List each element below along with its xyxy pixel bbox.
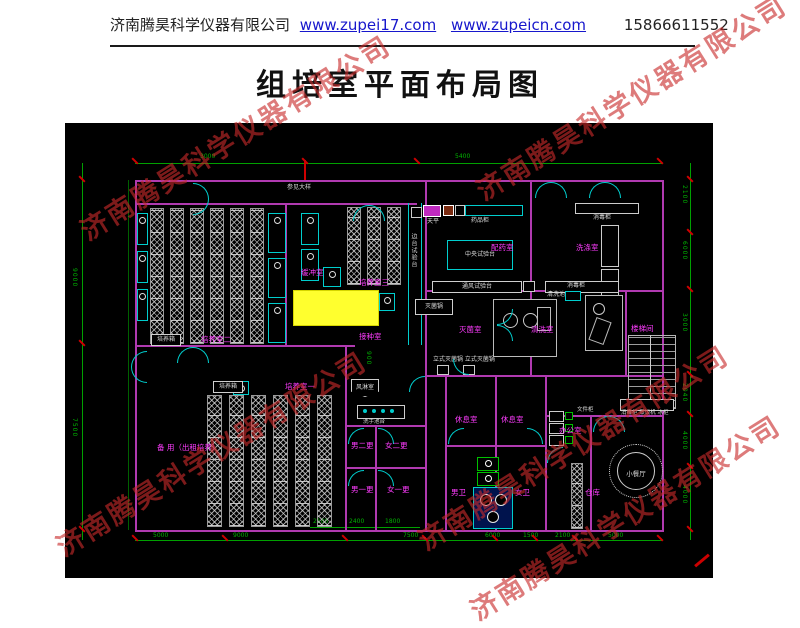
room-label-nv1: 女一更 [387,486,410,494]
dim-top-2: 5400 [455,154,470,160]
dining-room-label: 小餐厅 [626,470,646,478]
culture-rack [250,208,264,344]
wall [345,345,347,530]
door-arc-icon [409,376,425,392]
dim-line-bottom2 [310,527,420,528]
toilet-bowl-icon [495,494,507,506]
corridor-line [421,203,422,345]
sterilizer-label: 灭菌锅 [425,303,443,310]
door-arc-icon [605,182,621,198]
door-arc-icon [551,182,567,198]
disinfect-bench [575,203,639,214]
medicine-cabinet-label: 药品柜 [471,218,489,224]
culture-rack [295,395,310,527]
room-label-nvwei: 女卫 [515,489,530,497]
room-label-huanchong: 缓冲室 [301,269,324,277]
dim-top-1: 3000 [200,154,215,160]
grid-line [128,180,129,530]
oven-icon [443,205,454,216]
stair-divider [650,335,651,407]
culture-rack [387,207,401,285]
fume-bench: 通风试验台 [432,281,522,293]
room-label-xiuxi2: 休息室 [501,416,524,424]
door-arc-icon [131,367,147,383]
dim-right-1: 2100 [681,185,687,204]
culture-rack [251,395,266,527]
wall [445,375,447,530]
page: { "header": { "company": "济南腾昊科学仪器有限公司",… [0,0,800,600]
culture-rack [207,395,222,527]
dim-bottom2-2: 2400 [349,519,364,525]
fume-bench-label: 通风试验台 [462,283,492,290]
door-arc-icon [348,470,364,486]
wall [625,290,627,375]
sink-icon [565,291,581,301]
incubator-icon [137,289,148,321]
door-arc-icon [193,347,209,363]
room-label-nanwei: 男卫 [451,489,466,497]
room-label-louti: 楼梯间 [631,325,654,333]
basin-icons [363,409,367,413]
door-arc-icon [193,199,209,215]
incubator-label: 培养箱 [157,336,175,343]
dim-line-right [690,163,691,540]
room-label-peiyang2: 培养室二 [201,336,231,344]
incubator-icon [137,213,148,245]
culture-rack [190,208,204,344]
incubator-icon [268,258,286,298]
side-bench-label: 边台试验台 [410,233,416,268]
door-arc-icon [131,351,147,367]
dim-line-bottom [135,540,662,541]
sink-green-icon [477,472,499,486]
incubator-icon [137,251,148,283]
sink-unit [601,225,619,267]
hatched-wall [571,463,583,529]
corridor-note: 参见大样 [287,185,311,191]
chair-icon [565,436,573,444]
culture-rack [230,208,244,344]
dim-bottom-1: 5000 [153,533,168,539]
company-name: 济南腾昊科学仪器有限公司 [110,16,290,34]
room-label-xidi: 洗涤室 [576,244,599,252]
dim-right-2: 6000 [681,241,687,260]
dim-right-4: 2040 [681,383,687,402]
dim-right-5: 4000 [681,431,687,450]
culture-rack [273,395,288,527]
door-arc-icon [593,416,609,432]
dining-table: 小餐厅 [617,452,655,490]
culture-rack [170,208,184,344]
sterilizer-icon [437,365,449,375]
culture-rack [150,208,164,344]
door-tag-icon [523,281,535,292]
incubator-icon [268,303,286,343]
wall [545,375,547,530]
room-label-peiyao: 配药室 [491,244,514,252]
balance-label: 天平 [427,219,439,225]
incubator-icon [268,213,286,253]
page-title: 组培室平面布局图 [0,60,800,104]
sink-green-icon [477,457,499,471]
dim-bottom-3: 7500 [403,533,418,539]
room-label-cangku: 仓库 [585,489,600,497]
wall [345,467,425,469]
room-label-beiyong: 备 用（出租培养） [157,444,219,452]
toilet-bowl-icon [487,511,499,523]
wall [135,203,417,205]
room-label-peiyang3: 培养室三 [359,279,389,287]
disinfect-cabinet-label: 消毒柜 [593,215,611,221]
door-arc-icon [453,359,469,375]
cabinet-bench [465,205,523,216]
disinfect-cabinet-label2: 消毒柜 [567,283,585,289]
dim-line-top [135,163,662,164]
wash-basin-label: 洗手池台 [363,420,385,426]
incubator-label2: 培养箱 [219,383,237,390]
sterilizer-box: 灭菌锅 [415,299,453,315]
air-shower-label: 风淋室 [356,384,374,391]
door-arc-icon [177,347,193,363]
incubator-icon [323,267,341,287]
room-label-xiuxi1: 休息室 [455,416,478,424]
dim-inner: 900 [365,351,371,365]
dim-line-left [82,163,83,540]
room-label-qingxi: 清洗室 [531,326,554,334]
dim-bottom2-3: 1800 [385,519,400,525]
dim-bottom-7: 5000 [608,533,623,539]
phone-number: 15866611552 [624,16,729,34]
dim-right-3: 3000 [681,313,687,332]
incubator-icon [379,293,395,311]
door-tag-icon [411,207,422,218]
link-zupei17[interactable]: www.zupei17.com [300,16,436,34]
room-label-nan1: 男一更 [351,486,374,494]
staircase [628,335,676,409]
incubator-icon [301,213,319,245]
door-arc-icon [589,182,605,198]
desk [549,411,564,422]
room-label-peiyang1: 培养室一 [285,383,315,391]
door-tag-icon [455,205,465,216]
door-arc-icon [527,428,543,444]
door-arc-icon [378,470,394,486]
central-bench-label: 中央试验台 [465,251,495,258]
wall [425,180,427,530]
wall [135,530,664,532]
door-arc-icon [535,182,551,198]
door-arc-icon [448,428,464,444]
floor-plan: 3000 5400 9000 7500 2100 6000 3000 2040 … [65,123,713,578]
door-arc-icon [609,416,625,432]
room-label-nan2: 男二更 [351,442,374,450]
wall [590,415,592,530]
door-arc-icon [193,183,209,199]
dim-left-2: 7500 [71,418,77,437]
dim-bottom-2: 9000 [233,533,248,539]
air-shower-tag: 风淋室 [351,379,379,397]
room-label-jiezhong: 接种室 [359,333,382,341]
wall [135,180,664,182]
culture-rack [317,395,332,527]
wall [375,425,377,530]
clean-bench-highlight [293,290,379,326]
incubator-tag: 培养箱 [213,381,243,393]
toilet-bowl-icon [480,494,492,506]
kitchen-bench-label: 消毒柜 蒸饭机 冰柜 [621,411,669,417]
room-label-bangong: 办公室 [559,427,582,435]
desk [549,435,564,446]
dim-left-1: 9000 [71,268,77,287]
toilet-block [473,487,513,529]
balance-icon [423,205,441,217]
culture-rack [229,395,244,527]
page-header: 济南腾昊科学仪器有限公司 www.zupei17.com www.zupeicn… [110,14,695,47]
corridor-line [408,203,409,345]
door-arc-icon [547,447,563,463]
red-corner-mark [694,554,710,568]
boiler-dial-icon [593,303,605,315]
dim-bottom-6: 2100 [555,533,570,539]
chair-icon [565,412,573,420]
room-label-nv2: 女二更 [385,442,408,450]
door-arc-icon [369,205,385,221]
link-zupeicn[interactable]: www.zupeicn.com [451,16,586,34]
culture-rack [210,208,224,344]
room-label-miejun: 灭菌室 [459,326,482,334]
rinse-sink-label: 清洗池 [547,292,565,298]
incubator-tag: 培养箱 [151,334,181,346]
file-cabinet-label: 文件柜 [577,408,594,414]
dim-right-6: 4000 [681,485,687,504]
